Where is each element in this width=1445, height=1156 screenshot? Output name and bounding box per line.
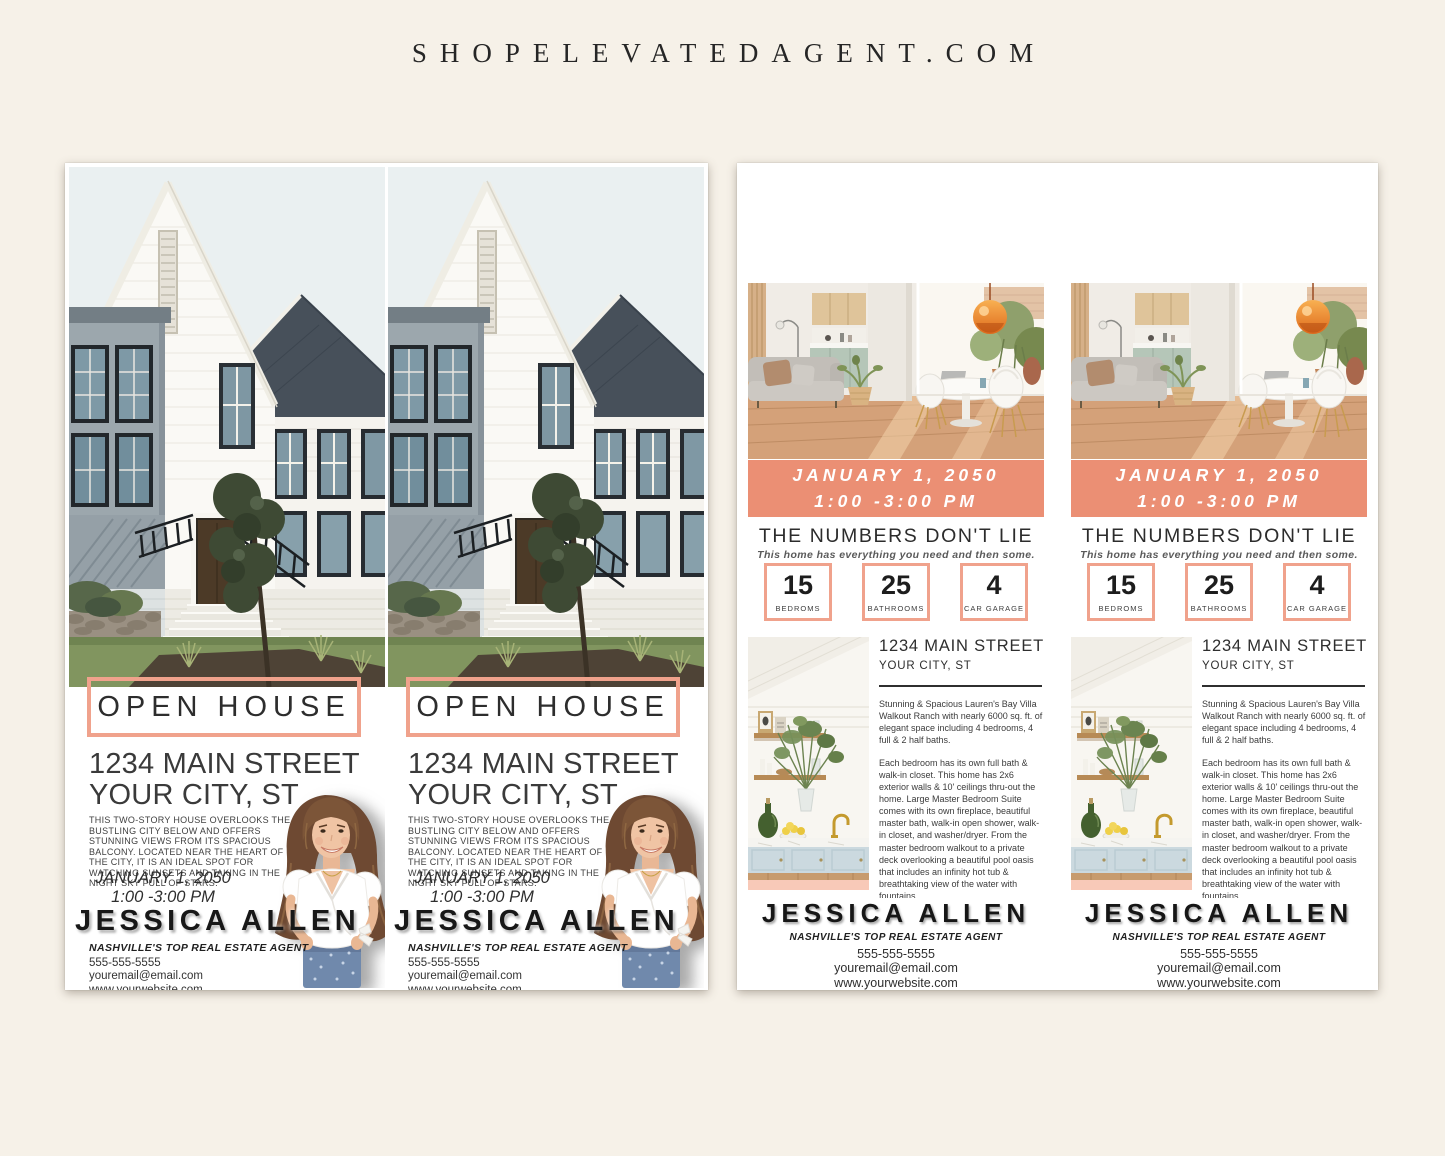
address-line-1: 1234 MAIN STREET: [408, 749, 679, 780]
date-line-1: JANUARY 1, 2050: [406, 869, 558, 888]
agent-website: www.yourwebsite.com: [1071, 976, 1367, 990]
numbers-subheadline: This home has everything you need and th…: [1071, 549, 1367, 561]
banner-date-line-1: JANUARY 1, 2050: [1115, 463, 1322, 488]
stat-bedrooms: 15 BEDROMS: [1087, 563, 1155, 621]
open-house-date-banner: JANUARY 1, 2050 1:00 -3:00 PM: [1071, 460, 1367, 517]
stat-bathrooms-label: BATHROOMS: [1191, 604, 1248, 613]
living-room-photo: [1071, 283, 1367, 459]
front-flyer-column: OPEN HOUSE 1234 MAIN STREET YOUR CITY, S…: [69, 163, 385, 990]
stat-garage: 4 CAR GARAGE: [960, 563, 1028, 621]
peach-accent-strip: [748, 880, 869, 890]
stat-bathrooms-value: 25: [881, 572, 911, 599]
open-house-box: OPEN HOUSE: [87, 677, 361, 737]
stat-bathrooms: 25 BATHROOMS: [862, 563, 930, 621]
detail-address-line-2: YOUR CITY, ST: [879, 660, 1044, 672]
stat-garage-label: CAR GARAGE: [1287, 604, 1347, 613]
detail-address-line-1: 1234 MAIN STREET: [1202, 637, 1367, 656]
agent-photo: [255, 783, 385, 988]
numbers-headline: THE NUMBERS DON'T LIE: [1071, 525, 1367, 548]
stat-bathrooms-value: 25: [1204, 572, 1234, 599]
agent-block: JESSICA ALLEN NASHVILLE'S TOP REAL ESTAT…: [1071, 898, 1367, 990]
agent-phone: 555-555-5555: [748, 947, 1044, 961]
house-exterior-photo: [69, 167, 385, 687]
kitchen-photo-wrap: [748, 637, 869, 890]
stat-garage-label: CAR GARAGE: [964, 604, 1024, 613]
divider: [879, 685, 1042, 687]
house-exterior-photo: [388, 167, 704, 687]
agent-phone: 555-555-5555: [89, 957, 203, 970]
stat-garage-value: 4: [1309, 572, 1324, 599]
peach-accent-strip: [1071, 880, 1192, 890]
open-house-date-banner: JANUARY 1, 2050 1:00 -3:00 PM: [748, 460, 1044, 517]
agent-photo: [574, 783, 704, 988]
agent-name: JESSICA ALLEN: [748, 898, 1044, 929]
detail-paragraph-2: Each bedroom has its own full bath & wal…: [1202, 757, 1367, 903]
stat-garage: 4 CAR GARAGE: [1283, 563, 1351, 621]
agent-title: NASHVILLE'S TOP REAL ESTATE AGENT: [89, 942, 309, 954]
front-flyer-page: OPEN HOUSE 1234 MAIN STREET YOUR CITY, S…: [65, 163, 708, 990]
agent-website: www.yourwebsite.com: [748, 976, 1044, 990]
stats-row: 15 BEDROMS 25 BATHROOMS 4 CAR GARAGE: [748, 563, 1044, 621]
agent-email: youremail@email.com: [89, 970, 203, 983]
agent-title: NASHVILLE'S TOP REAL ESTATE AGENT: [408, 942, 628, 954]
agent-name: JESSICA ALLEN: [75, 905, 385, 938]
detail-address-line-2: YOUR CITY, ST: [1202, 660, 1367, 672]
agent-contact: 555-555-5555 youremail@email.com www.you…: [408, 955, 522, 990]
agent-title: NASHVILLE'S TOP REAL ESTATE AGENT: [748, 932, 1044, 943]
back-flyer-column: JANUARY 1, 2050 1:00 -3:00 PM THE NUMBER…: [748, 163, 1044, 990]
numbers-subheadline: This home has everything you need and th…: [748, 549, 1044, 561]
agent-name: JESSICA ALLEN: [1071, 898, 1367, 929]
open-house-date: JANUARY 1, 2050 1:00 -3:00 PM: [406, 869, 558, 907]
stat-bedrooms-label: BEDROMS: [1099, 604, 1144, 613]
banner-date-line-1: JANUARY 1, 2050: [792, 463, 999, 488]
front-flyer-column: OPEN HOUSE 1234 MAIN STREET YOUR CITY, S…: [388, 163, 704, 990]
kitchen-photo-wrap: [1071, 637, 1192, 890]
open-house-date: JANUARY 1, 2050 1:00 -3:00 PM: [87, 869, 239, 907]
back-flyer-page: JANUARY 1, 2050 1:00 -3:00 PM THE NUMBER…: [737, 163, 1378, 990]
property-details: 1234 MAIN STREET YOUR CITY, ST Stunning …: [879, 637, 1044, 902]
stat-bedrooms-value: 15: [1106, 572, 1136, 599]
open-house-box: OPEN HOUSE: [406, 677, 680, 737]
numbers-headline: THE NUMBERS DON'T LIE: [748, 525, 1044, 548]
agent-email: youremail@email.com: [748, 961, 1044, 976]
detail-paragraph-1: Stunning & Spacious Lauren's Bay Villa W…: [1202, 698, 1367, 747]
agent-email: youremail@email.com: [1071, 961, 1367, 976]
agent-name: JESSICA ALLEN: [394, 905, 704, 938]
banner-date-line-2: 1:00 -3:00 PM: [1137, 489, 1301, 514]
banner-date-line-2: 1:00 -3:00 PM: [814, 489, 978, 514]
agent-title: NASHVILLE'S TOP REAL ESTATE AGENT: [1071, 932, 1367, 943]
back-flyer-column: JANUARY 1, 2050 1:00 -3:00 PM THE NUMBER…: [1071, 163, 1367, 990]
detail-paragraph-2: Each bedroom has its own full bath & wal…: [879, 757, 1044, 903]
stat-bathrooms: 25 BATHROOMS: [1185, 563, 1253, 621]
open-house-label: OPEN HOUSE: [97, 691, 350, 724]
detail-paragraph-1: Stunning & Spacious Lauren's Bay Villa W…: [879, 698, 1044, 747]
agent-block: JESSICA ALLEN NASHVILLE'S TOP REAL ESTAT…: [748, 898, 1044, 990]
stat-bedrooms-value: 15: [783, 572, 813, 599]
date-line-1: JANUARY 1, 2050: [87, 869, 239, 888]
open-house-label: OPEN HOUSE: [416, 691, 669, 724]
stats-row: 15 BEDROMS 25 BATHROOMS 4 CAR GARAGE: [1071, 563, 1367, 621]
stat-bedrooms-label: BEDROMS: [776, 604, 821, 613]
agent-website: www.yourwebsite.com: [408, 984, 522, 990]
address-line-1: 1234 MAIN STREET: [89, 749, 360, 780]
agent-email: youremail@email.com: [408, 970, 522, 983]
detail-address-line-1: 1234 MAIN STREET: [879, 637, 1044, 656]
divider: [1202, 685, 1365, 687]
kitchen-photo: [748, 637, 869, 880]
agent-website: www.yourwebsite.com: [89, 984, 203, 990]
stat-bedrooms: 15 BEDROMS: [764, 563, 832, 621]
stat-garage-value: 4: [986, 572, 1001, 599]
living-room-photo: [748, 283, 1044, 459]
agent-phone: 555-555-5555: [408, 957, 522, 970]
site-header: SHOPELEVATEDAGENT.COM: [0, 38, 1445, 69]
kitchen-photo: [1071, 637, 1192, 880]
stat-bathrooms-label: BATHROOMS: [868, 604, 925, 613]
agent-contact: 555-555-5555 youremail@email.com www.you…: [89, 955, 203, 990]
property-details: 1234 MAIN STREET YOUR CITY, ST Stunning …: [1202, 637, 1367, 902]
agent-phone: 555-555-5555: [1071, 947, 1367, 961]
